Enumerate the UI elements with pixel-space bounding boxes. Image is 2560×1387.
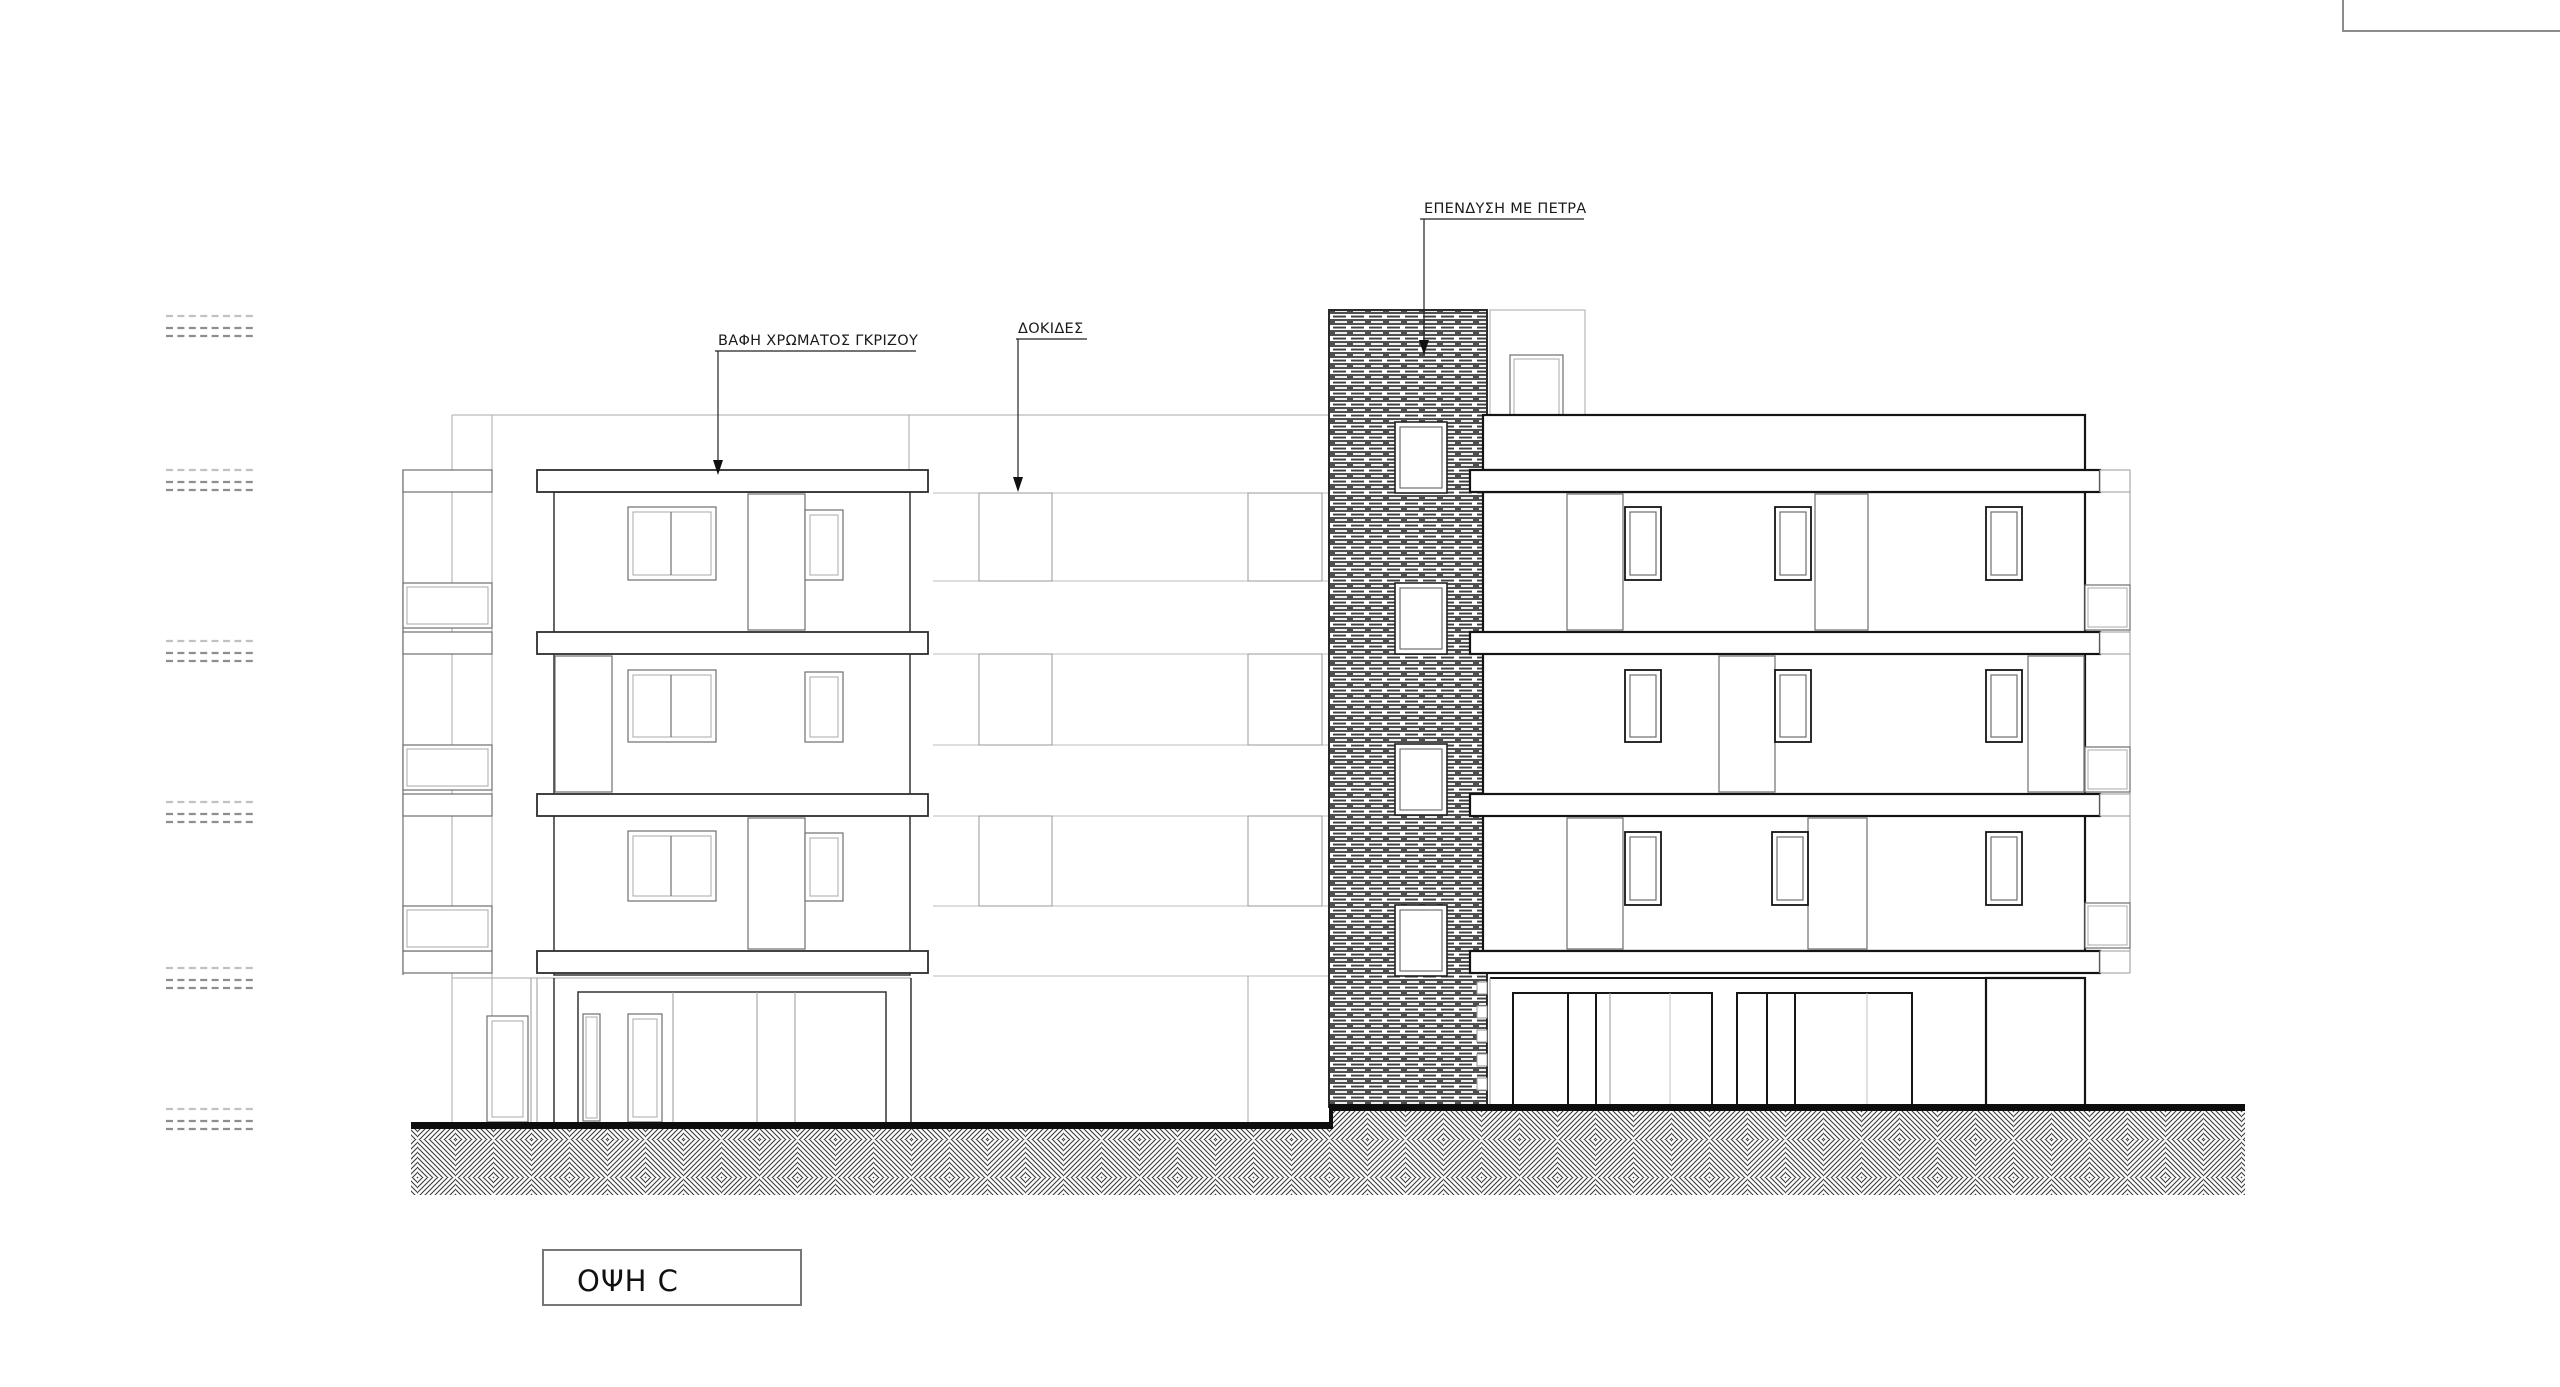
tower-window (1395, 422, 1447, 493)
ground-line (1333, 1104, 2245, 1111)
datum-mark (166, 470, 257, 490)
right-balcony-strip (2085, 470, 2130, 973)
slab-band (1470, 632, 2100, 654)
left-balcony-strip (403, 470, 492, 975)
ground-hatch (411, 1129, 1333, 1195)
elevation-drawing-sheet: ΕΠΕΝΔΥΣΗ ΜΕ ΠΕΤΡΑ ΒΑΦΗ ΧΡΩΜΑΤΟΣ ΓΚΡΙΖΟΥ … (0, 0, 2560, 1387)
elevation-title: ΟΨΗ C (577, 1264, 679, 1298)
slab-band (537, 951, 928, 973)
stair-penthouse (1490, 310, 1585, 415)
window (628, 831, 716, 901)
left-building (487, 470, 928, 1123)
corner-pier (1986, 978, 2085, 1108)
window (628, 507, 716, 580)
right-building (1470, 415, 2130, 1108)
annotation-stone-cladding-label: ΕΠΕΝΔΥΣΗ ΜΕ ΠΕΤΡΑ (1424, 201, 1587, 217)
storefront (1513, 993, 1712, 1107)
annotation-joists-label: ΔΟΚΙΔΕΣ (1018, 321, 1083, 337)
slab-band (1470, 794, 2100, 816)
ground-line (411, 1122, 1333, 1129)
tower-window (1395, 744, 1447, 815)
annotation-joists: ΔΟΚΙΔΕΣ (1013, 321, 1087, 492)
slab-band (1470, 470, 2100, 492)
window (628, 670, 716, 742)
datum-mark (166, 1109, 257, 1129)
storefront (1737, 993, 1912, 1107)
datum-mark (166, 316, 257, 336)
roof-parapet (1483, 415, 2085, 470)
slab-band (537, 632, 928, 654)
annotation-grey-paint: ΒΑΦΗ ΧΡΩΜΑΤΟΣ ΓΚΡΙΖΟΥ (713, 333, 918, 475)
ground-hatch (1333, 1111, 2245, 1195)
tower-window (1395, 583, 1447, 654)
ground (411, 1104, 2245, 1195)
entrance-level (487, 978, 911, 1123)
louvered-door (583, 1014, 600, 1121)
annotation-grey-paint-label: ΒΑΦΗ ΧΡΩΜΑΤΟΣ ΓΚΡΙΖΟΥ (718, 333, 918, 349)
louvered-door (628, 1014, 662, 1122)
louvered-door (487, 1016, 528, 1122)
title-block: ΟΨΗ C (543, 1250, 801, 1305)
datum-mark (166, 802, 257, 822)
slab-band (537, 470, 928, 492)
datum-mark (166, 641, 257, 661)
slab-band (537, 794, 928, 816)
datum-mark (166, 968, 257, 988)
elevation-drawing: ΕΠΕΝΔΥΣΗ ΜΕ ΠΕΤΡΑ ΒΑΦΗ ΧΡΩΜΑΤΟΣ ΓΚΡΙΖΟΥ … (0, 0, 2560, 1387)
sheet-corner-box (2343, 0, 2560, 31)
leader-arrow (1013, 477, 1023, 492)
tower-window (1395, 905, 1447, 976)
datum-marks (166, 316, 257, 1129)
ground-floor-pilotis (1490, 978, 2085, 1108)
stone-tower (1329, 310, 1487, 1107)
slab-band (1470, 951, 2100, 973)
pergola-joists (979, 493, 1322, 906)
window-narrow (805, 510, 843, 901)
